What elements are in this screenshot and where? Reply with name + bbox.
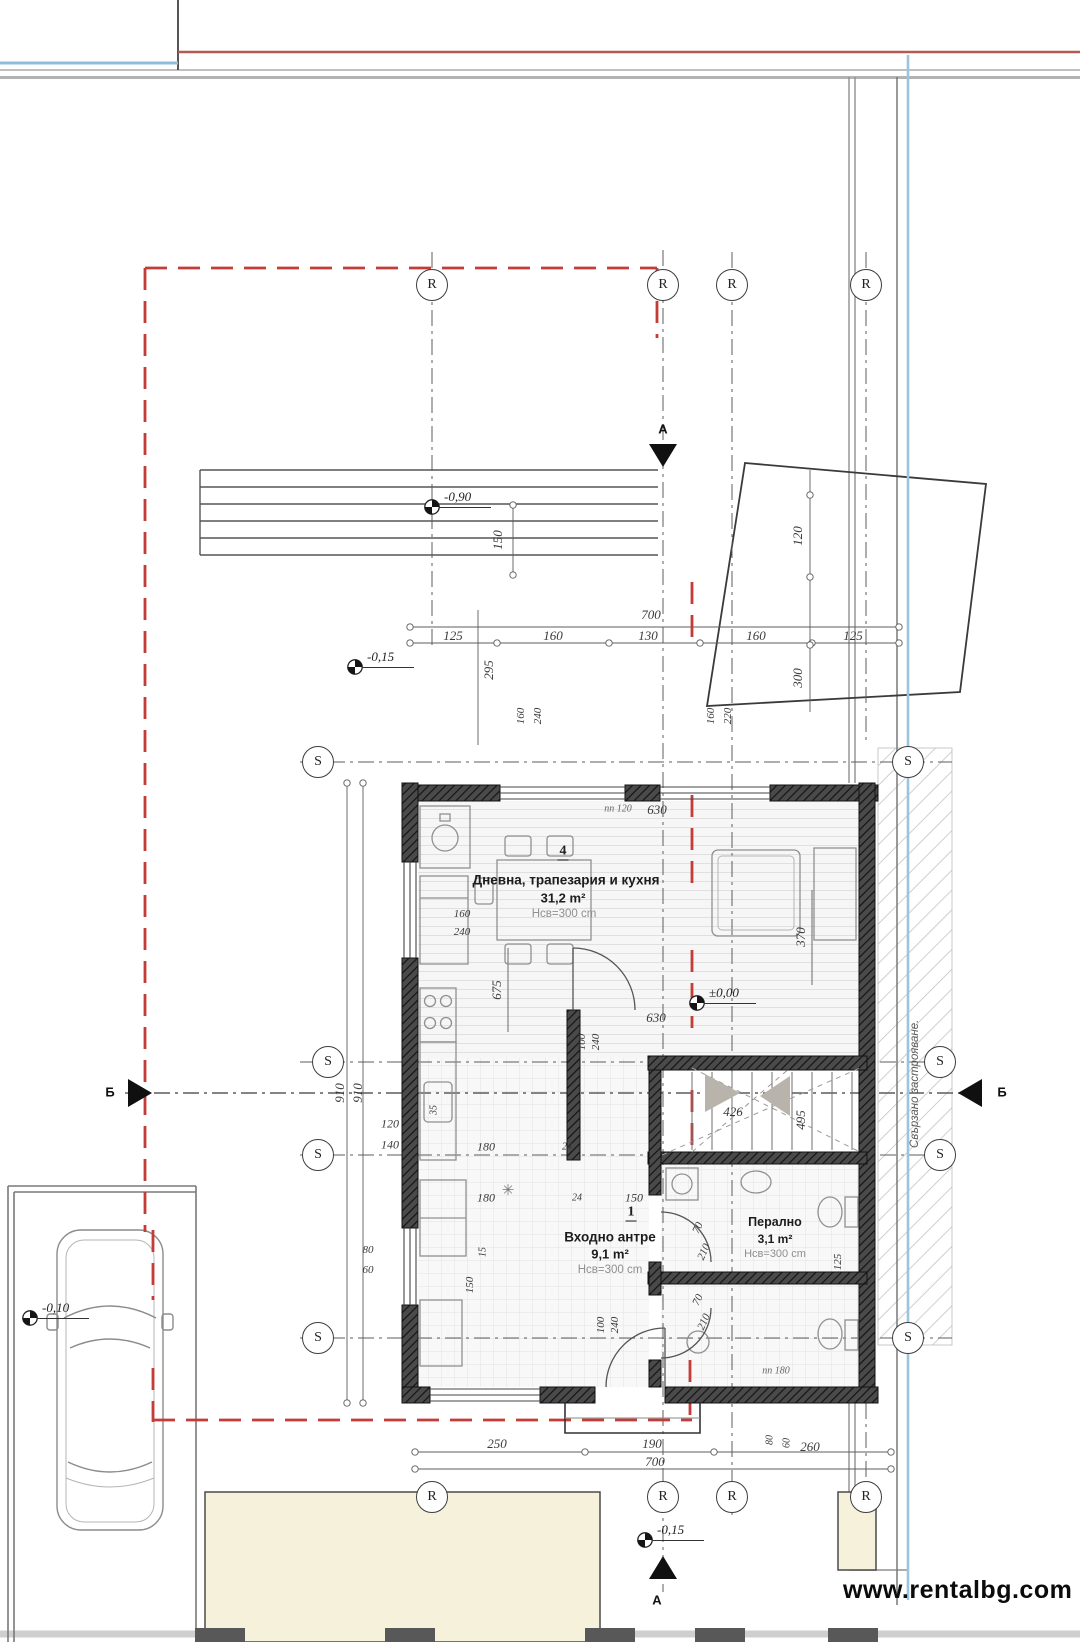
elevation-leader: [439, 507, 491, 508]
dim-label: 240: [590, 1034, 602, 1051]
dim-label: 700: [645, 1454, 665, 1470]
plan-linework: [0, 0, 1080, 1642]
dim-label: пп 120: [604, 804, 632, 815]
room-area-laundry: 3,1 m²: [758, 1232, 793, 1246]
dim-label: пп 180: [762, 1366, 790, 1377]
elevation-leader: [362, 667, 414, 668]
room-area-living: 31,2 m²: [541, 891, 586, 906]
grid-axis-bubble-r: R: [850, 269, 882, 301]
neighbour-building-outline: [707, 463, 986, 706]
dim-label: 160: [746, 628, 766, 644]
dim-label: 220: [722, 708, 734, 725]
room-name-laundry: Перално: [748, 1215, 802, 1229]
room-name-living: Дневна, трапезария и кухня: [472, 873, 659, 888]
dim-label: 60: [363, 1264, 374, 1276]
dim-label: 160: [454, 908, 471, 920]
grid-axis-bubble-r: R: [716, 269, 748, 301]
dim-label: 675: [489, 980, 505, 1000]
dim-label: 15: [478, 1247, 489, 1257]
grid-axis-bubble-r: R: [647, 1481, 679, 1513]
dim-label: 80: [363, 1244, 374, 1256]
section-marker-icon: [649, 1556, 677, 1579]
floor-plan-canvas: 4 Дневна, трапезария и кухня 31,2 m² Нсв…: [0, 0, 1080, 1642]
elevation-marker-icon: [22, 1310, 38, 1326]
section-letter: А: [658, 422, 667, 437]
dim-label: 370: [793, 927, 809, 947]
dim-label: 100: [595, 1317, 607, 1334]
watermark-text: www.rentalbg.com: [843, 1576, 1073, 1605]
dim-label: 80: [765, 1435, 776, 1445]
elevation-value: -0,10: [42, 1300, 69, 1316]
dim-label: 630: [647, 802, 667, 818]
dim-label: 240: [532, 708, 544, 725]
dim-label: 150: [625, 1191, 643, 1206]
room-number-living: 4: [558, 844, 569, 861]
room-height-laundry: Нсв=300 cm: [744, 1248, 806, 1260]
floor-fills: [418, 801, 859, 1387]
section-marker-icon: [128, 1079, 152, 1107]
elevation-marker-icon: [424, 499, 440, 515]
grid-axis-bubble-r: R: [416, 1481, 448, 1513]
grid-axis-bubble-r: R: [850, 1481, 882, 1513]
room-area-hall: 9,1 m²: [591, 1247, 629, 1262]
dim-label: 180: [477, 1140, 495, 1155]
elevation-marker-icon: [689, 995, 705, 1011]
dim-label: 300: [790, 668, 806, 688]
elevation-marker-icon: [637, 1532, 653, 1548]
dim-label: 24: [572, 1193, 582, 1204]
section-letter: Б: [105, 1085, 114, 1100]
dim-label: 125: [832, 1254, 844, 1271]
stairs: [662, 1068, 860, 1155]
grid-axis-bubble-s: S: [892, 746, 924, 778]
elevation-value: ±0,00: [709, 985, 739, 1001]
dim-label: 910: [350, 1083, 366, 1103]
dim-label: 125: [443, 628, 463, 644]
dim-label: 250: [487, 1436, 507, 1452]
section-marker-icon: [958, 1079, 982, 1107]
section-marker-icon: [649, 444, 677, 467]
section-letter: Б: [997, 1085, 1006, 1100]
room-number-hall: 1: [626, 1205, 637, 1222]
dim-label: 260: [800, 1439, 820, 1455]
floor-drain-icon: ✳: [502, 1181, 515, 1199]
grid-axis-bubble-s: S: [302, 1322, 334, 1354]
room-name-hall: Входно антре: [564, 1230, 656, 1245]
room-height-living: Нсв=300 cm: [532, 908, 597, 920]
dim-label: 700: [641, 607, 661, 623]
terrace-slabs: [205, 1492, 876, 1642]
dim-label: 630: [646, 1010, 666, 1026]
section-letter: А: [652, 1593, 661, 1608]
elevation-leader: [704, 1003, 756, 1004]
grid-axis-bubble-s: S: [302, 1139, 334, 1171]
dim-label: 140: [381, 1138, 399, 1153]
grid-axis-bubble-r: R: [647, 269, 679, 301]
grid-axis-bubble-r: R: [716, 1481, 748, 1513]
dim-label: 150: [464, 1277, 476, 1294]
dim-label: 495: [793, 1110, 809, 1130]
dim-label: 120: [381, 1117, 399, 1132]
elevation-leader: [652, 1540, 704, 1541]
dim-label: 190: [642, 1436, 662, 1452]
dim-label: 295: [481, 660, 497, 680]
grid-axis-bubble-s: S: [892, 1322, 924, 1354]
elevation-value: -0,15: [367, 649, 394, 665]
garage-plot: [8, 1186, 196, 1642]
dim-label: 125: [843, 628, 863, 644]
elevation-leader: [37, 1318, 89, 1319]
grid-axis-bubble-s: S: [924, 1046, 956, 1078]
elevation-value: -0,15: [657, 1522, 684, 1538]
dim-label: 240: [609, 1317, 621, 1334]
grid-axis-bubble-s: S: [312, 1046, 344, 1078]
dim-label: 100: [576, 1034, 588, 1051]
elevation-marker-icon: [347, 659, 363, 675]
attached-development-note: Свързано застрояване.: [909, 948, 921, 1148]
grid-axis-bubble-r: R: [416, 269, 448, 301]
dim-label: 150: [490, 530, 506, 550]
dim-label: 160: [705, 708, 717, 725]
room-height-hall: Нсв=300 cm: [578, 1264, 643, 1276]
dim-label: 240: [454, 926, 471, 938]
grid-axis-bubble-s: S: [302, 746, 334, 778]
dim-label: 160: [515, 708, 527, 725]
dim-label: 60: [782, 1438, 793, 1448]
elevation-value: -0,90: [444, 489, 471, 505]
dim-label: 426: [723, 1104, 743, 1120]
entry-stoop: [565, 1403, 700, 1433]
grid-axis-bubble-s: S: [924, 1139, 956, 1171]
dim-label: 160: [543, 628, 563, 644]
dim-label: 120: [790, 526, 806, 546]
dim-label: 24: [562, 1142, 572, 1153]
dim-label: 35: [429, 1105, 440, 1115]
dim-label: 910: [332, 1083, 348, 1103]
dim-label: 180: [477, 1191, 495, 1206]
dim-label: 130: [638, 628, 658, 644]
